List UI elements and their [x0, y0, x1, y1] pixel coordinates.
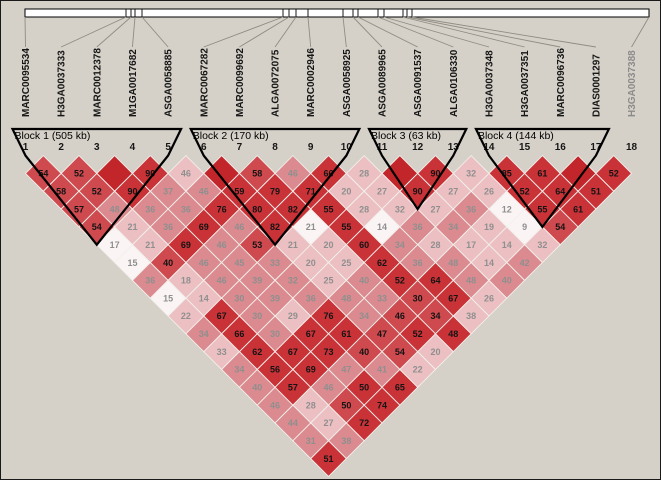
marker-connector-line [25, 17, 26, 47]
haploview-ld-plot: MARC0095534H3GA0037333MARC0012378M1GA001… [0, 0, 661, 480]
marker-number-3: 3 [94, 142, 100, 153]
marker-label-H3GA0037348: H3GA0037348 [484, 50, 495, 117]
marker-connector-line [343, 17, 346, 47]
marker-label-MARC0095534: MARC0095534 [21, 48, 32, 117]
marker-connector-line [308, 17, 311, 47]
marker-number-8: 8 [272, 142, 278, 153]
ld-heatmap-svg: MARC0095534H3GA0037333MARC0012378M1GA001… [1, 1, 660, 479]
marker-number-4: 4 [130, 142, 136, 153]
marker-connector-line [132, 17, 135, 47]
marker-number-12: 12 [412, 142, 424, 153]
marker-number-18: 18 [626, 142, 638, 153]
block-label-3: Block 3 (63 kb) [371, 130, 441, 142]
marker-connector-line [384, 17, 489, 47]
marker-label-MARC0096736: MARC0096736 [556, 48, 567, 117]
marker-connector-line [142, 17, 168, 47]
marker-label-H3GA0037333: H3GA0037333 [57, 50, 68, 117]
marker-label-DIAS0001297: DIAS0001297 [591, 54, 602, 117]
marker-connector-line [275, 17, 296, 47]
marker-connector-line [204, 17, 283, 47]
marker-number-9: 9 [308, 142, 314, 153]
marker-label-H3GA0037388: H3GA0037388 [627, 50, 638, 117]
marker-label-ALGA0072075: ALGA0072075 [271, 49, 282, 117]
marker-number-15: 15 [519, 142, 531, 153]
marker-label-MARC0099692: MARC0099692 [235, 48, 246, 117]
block-label-4: Block 4 (144 kb) [478, 130, 554, 142]
chromosome-bar [25, 9, 649, 17]
marker-label-M1GA0017682: M1GA0017682 [128, 49, 139, 117]
marker-connector-line [632, 17, 649, 47]
marker-number-2: 2 [58, 142, 64, 153]
marker-label-ALGA0106330: ALGA0106330 [449, 49, 460, 117]
marker-connector-line [412, 17, 596, 47]
marker-label-ASGA0058885: ASGA0058885 [164, 49, 175, 117]
marker-connector-line [61, 17, 126, 47]
marker-label-ASGA0091537: ASGA0091537 [413, 49, 424, 117]
marker-label-MARC0002946: MARC0002946 [306, 48, 317, 117]
marker-connector-line [407, 17, 560, 47]
marker-number-16: 16 [555, 142, 567, 153]
block-label-1: Block 1 (505 kb) [15, 130, 91, 142]
marker-label-ASGA0058925: ASGA0058925 [342, 49, 353, 117]
marker-label-H3GA0037351: H3GA0037351 [520, 50, 531, 117]
marker-connector-line [239, 17, 289, 47]
marker-label-MARC0067282: MARC0067282 [199, 48, 210, 117]
marker-connector-line [97, 17, 131, 47]
marker-label-MARC0012378: MARC0012378 [92, 48, 103, 117]
block-label-2: Block 2 (170 kb) [193, 130, 269, 142]
marker-label-ASGA0089965: ASGA0089965 [378, 49, 389, 117]
marker-number-7: 7 [237, 142, 243, 153]
